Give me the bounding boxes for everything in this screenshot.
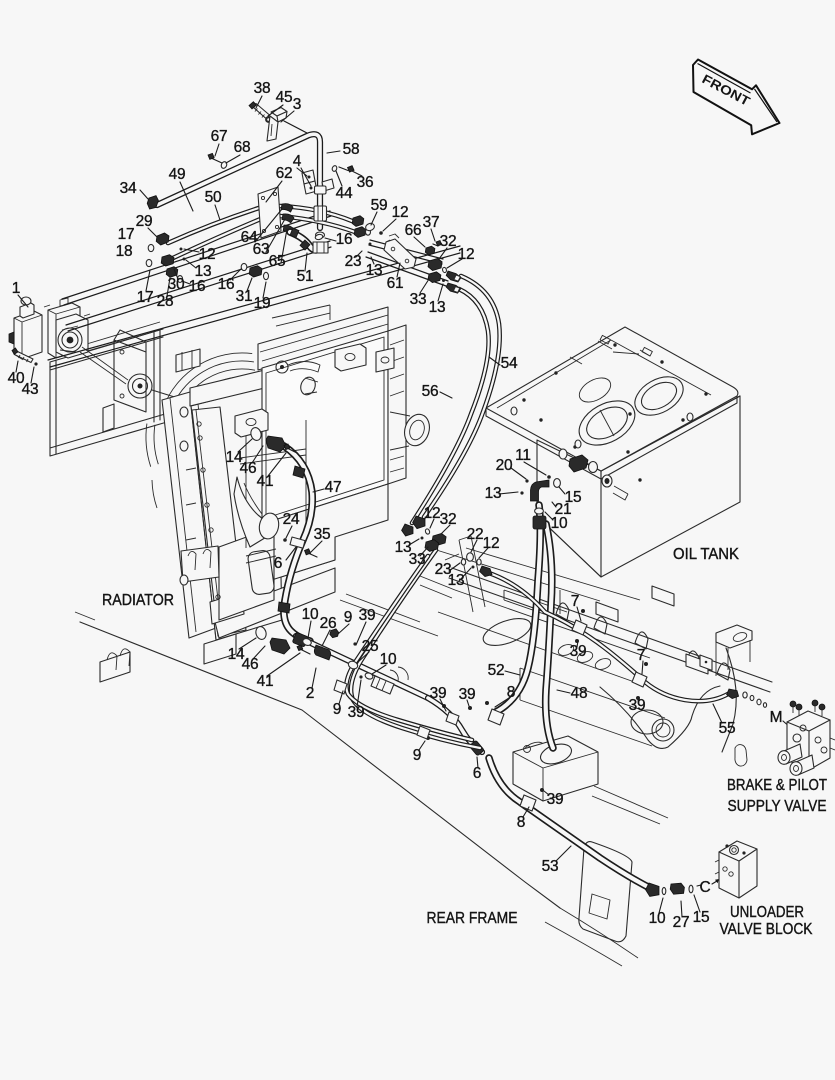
svg-text:50: 50 <box>205 189 222 206</box>
svg-text:9: 9 <box>344 609 352 626</box>
svg-text:26: 26 <box>320 615 337 632</box>
svg-text:39: 39 <box>430 685 447 702</box>
svg-text:BRAKE & PILOT: BRAKE & PILOT <box>727 777 827 794</box>
svg-text:10: 10 <box>649 910 666 927</box>
svg-text:68: 68 <box>234 139 251 156</box>
svg-text:34: 34 <box>120 180 137 197</box>
svg-text:RADIATOR: RADIATOR <box>102 592 174 609</box>
svg-text:46: 46 <box>242 656 259 673</box>
svg-text:65: 65 <box>269 253 286 270</box>
svg-text:48: 48 <box>571 685 588 702</box>
svg-text:31: 31 <box>236 288 253 305</box>
svg-text:SUPPLY VALVE: SUPPLY VALVE <box>728 798 827 815</box>
svg-text:61: 61 <box>387 275 404 292</box>
svg-text:54: 54 <box>501 355 518 372</box>
svg-text:67: 67 <box>211 128 228 145</box>
svg-text:39: 39 <box>359 607 376 624</box>
svg-text:4: 4 <box>293 153 302 170</box>
svg-text:32: 32 <box>440 233 457 250</box>
svg-text:8: 8 <box>517 814 525 831</box>
svg-text:23: 23 <box>345 253 362 270</box>
svg-text:41: 41 <box>257 673 274 690</box>
svg-text:37: 37 <box>423 214 440 231</box>
svg-text:62: 62 <box>276 165 293 182</box>
svg-text:3: 3 <box>293 96 301 113</box>
svg-text:12: 12 <box>199 246 216 263</box>
svg-text:19: 19 <box>254 295 271 312</box>
svg-text:17: 17 <box>118 226 135 243</box>
svg-text:M: M <box>770 709 783 726</box>
svg-text:10: 10 <box>551 515 568 532</box>
svg-text:52: 52 <box>488 662 505 679</box>
svg-text:47: 47 <box>325 479 342 496</box>
svg-text:13: 13 <box>429 299 446 316</box>
svg-text:33: 33 <box>409 551 426 568</box>
svg-text:49: 49 <box>169 166 186 183</box>
svg-text:12: 12 <box>392 204 409 221</box>
svg-text:36: 36 <box>357 174 374 191</box>
svg-text:16: 16 <box>189 278 206 295</box>
svg-text:58: 58 <box>343 141 360 158</box>
svg-text:66: 66 <box>405 222 422 239</box>
svg-text:44: 44 <box>336 185 353 202</box>
svg-text:13: 13 <box>366 262 383 279</box>
svg-text:33: 33 <box>410 291 427 308</box>
svg-text:16: 16 <box>336 231 353 248</box>
svg-text:35: 35 <box>314 526 331 543</box>
svg-text:28: 28 <box>157 293 174 310</box>
svg-text:30: 30 <box>168 276 185 293</box>
svg-text:C: C <box>700 879 711 896</box>
svg-text:24: 24 <box>283 511 300 528</box>
svg-text:39: 39 <box>547 791 564 808</box>
svg-text:39: 39 <box>459 686 476 703</box>
svg-text:10: 10 <box>302 606 319 623</box>
svg-text:55: 55 <box>719 720 736 737</box>
svg-text:53: 53 <box>542 858 559 875</box>
svg-text:15: 15 <box>693 909 710 926</box>
svg-text:10: 10 <box>380 651 397 668</box>
svg-text:9: 9 <box>333 701 341 718</box>
svg-text:18: 18 <box>116 243 133 260</box>
svg-text:46: 46 <box>240 460 257 477</box>
svg-text:13: 13 <box>448 572 465 589</box>
svg-text:29: 29 <box>136 213 153 230</box>
svg-text:17: 17 <box>137 289 154 306</box>
svg-text:11: 11 <box>515 447 531 464</box>
svg-text:12: 12 <box>424 505 441 522</box>
svg-text:6: 6 <box>274 555 282 572</box>
svg-text:7: 7 <box>637 647 645 664</box>
svg-text:45: 45 <box>276 89 293 106</box>
svg-text:25: 25 <box>362 638 379 655</box>
svg-text:38: 38 <box>254 80 271 97</box>
svg-text:VALVE BLOCK: VALVE BLOCK <box>720 921 813 938</box>
svg-text:6: 6 <box>473 765 481 782</box>
svg-text:43: 43 <box>22 381 39 398</box>
svg-text:2: 2 <box>306 685 314 702</box>
svg-text:12: 12 <box>458 246 475 263</box>
svg-text:1: 1 <box>12 280 20 297</box>
svg-text:22: 22 <box>467 526 484 543</box>
svg-text:UNLOADER: UNLOADER <box>730 904 804 921</box>
svg-text:39: 39 <box>629 697 646 714</box>
svg-text:39: 39 <box>348 704 365 721</box>
svg-text:56: 56 <box>422 383 439 400</box>
svg-text:13: 13 <box>485 485 502 502</box>
svg-text:51: 51 <box>297 268 314 285</box>
svg-text:59: 59 <box>371 197 388 214</box>
svg-text:39: 39 <box>570 643 587 660</box>
svg-text:41: 41 <box>257 473 274 490</box>
svg-text:8: 8 <box>507 684 515 701</box>
svg-text:9: 9 <box>413 747 421 764</box>
svg-text:27: 27 <box>673 914 690 931</box>
svg-text:12: 12 <box>483 535 500 552</box>
svg-text:OIL TANK: OIL TANK <box>673 546 739 563</box>
svg-text:63: 63 <box>253 241 270 258</box>
svg-text:16: 16 <box>218 276 235 293</box>
svg-text:20: 20 <box>496 457 513 474</box>
svg-text:REAR FRAME: REAR FRAME <box>427 910 518 927</box>
svg-text:7: 7 <box>571 593 579 610</box>
svg-text:32: 32 <box>440 511 457 528</box>
